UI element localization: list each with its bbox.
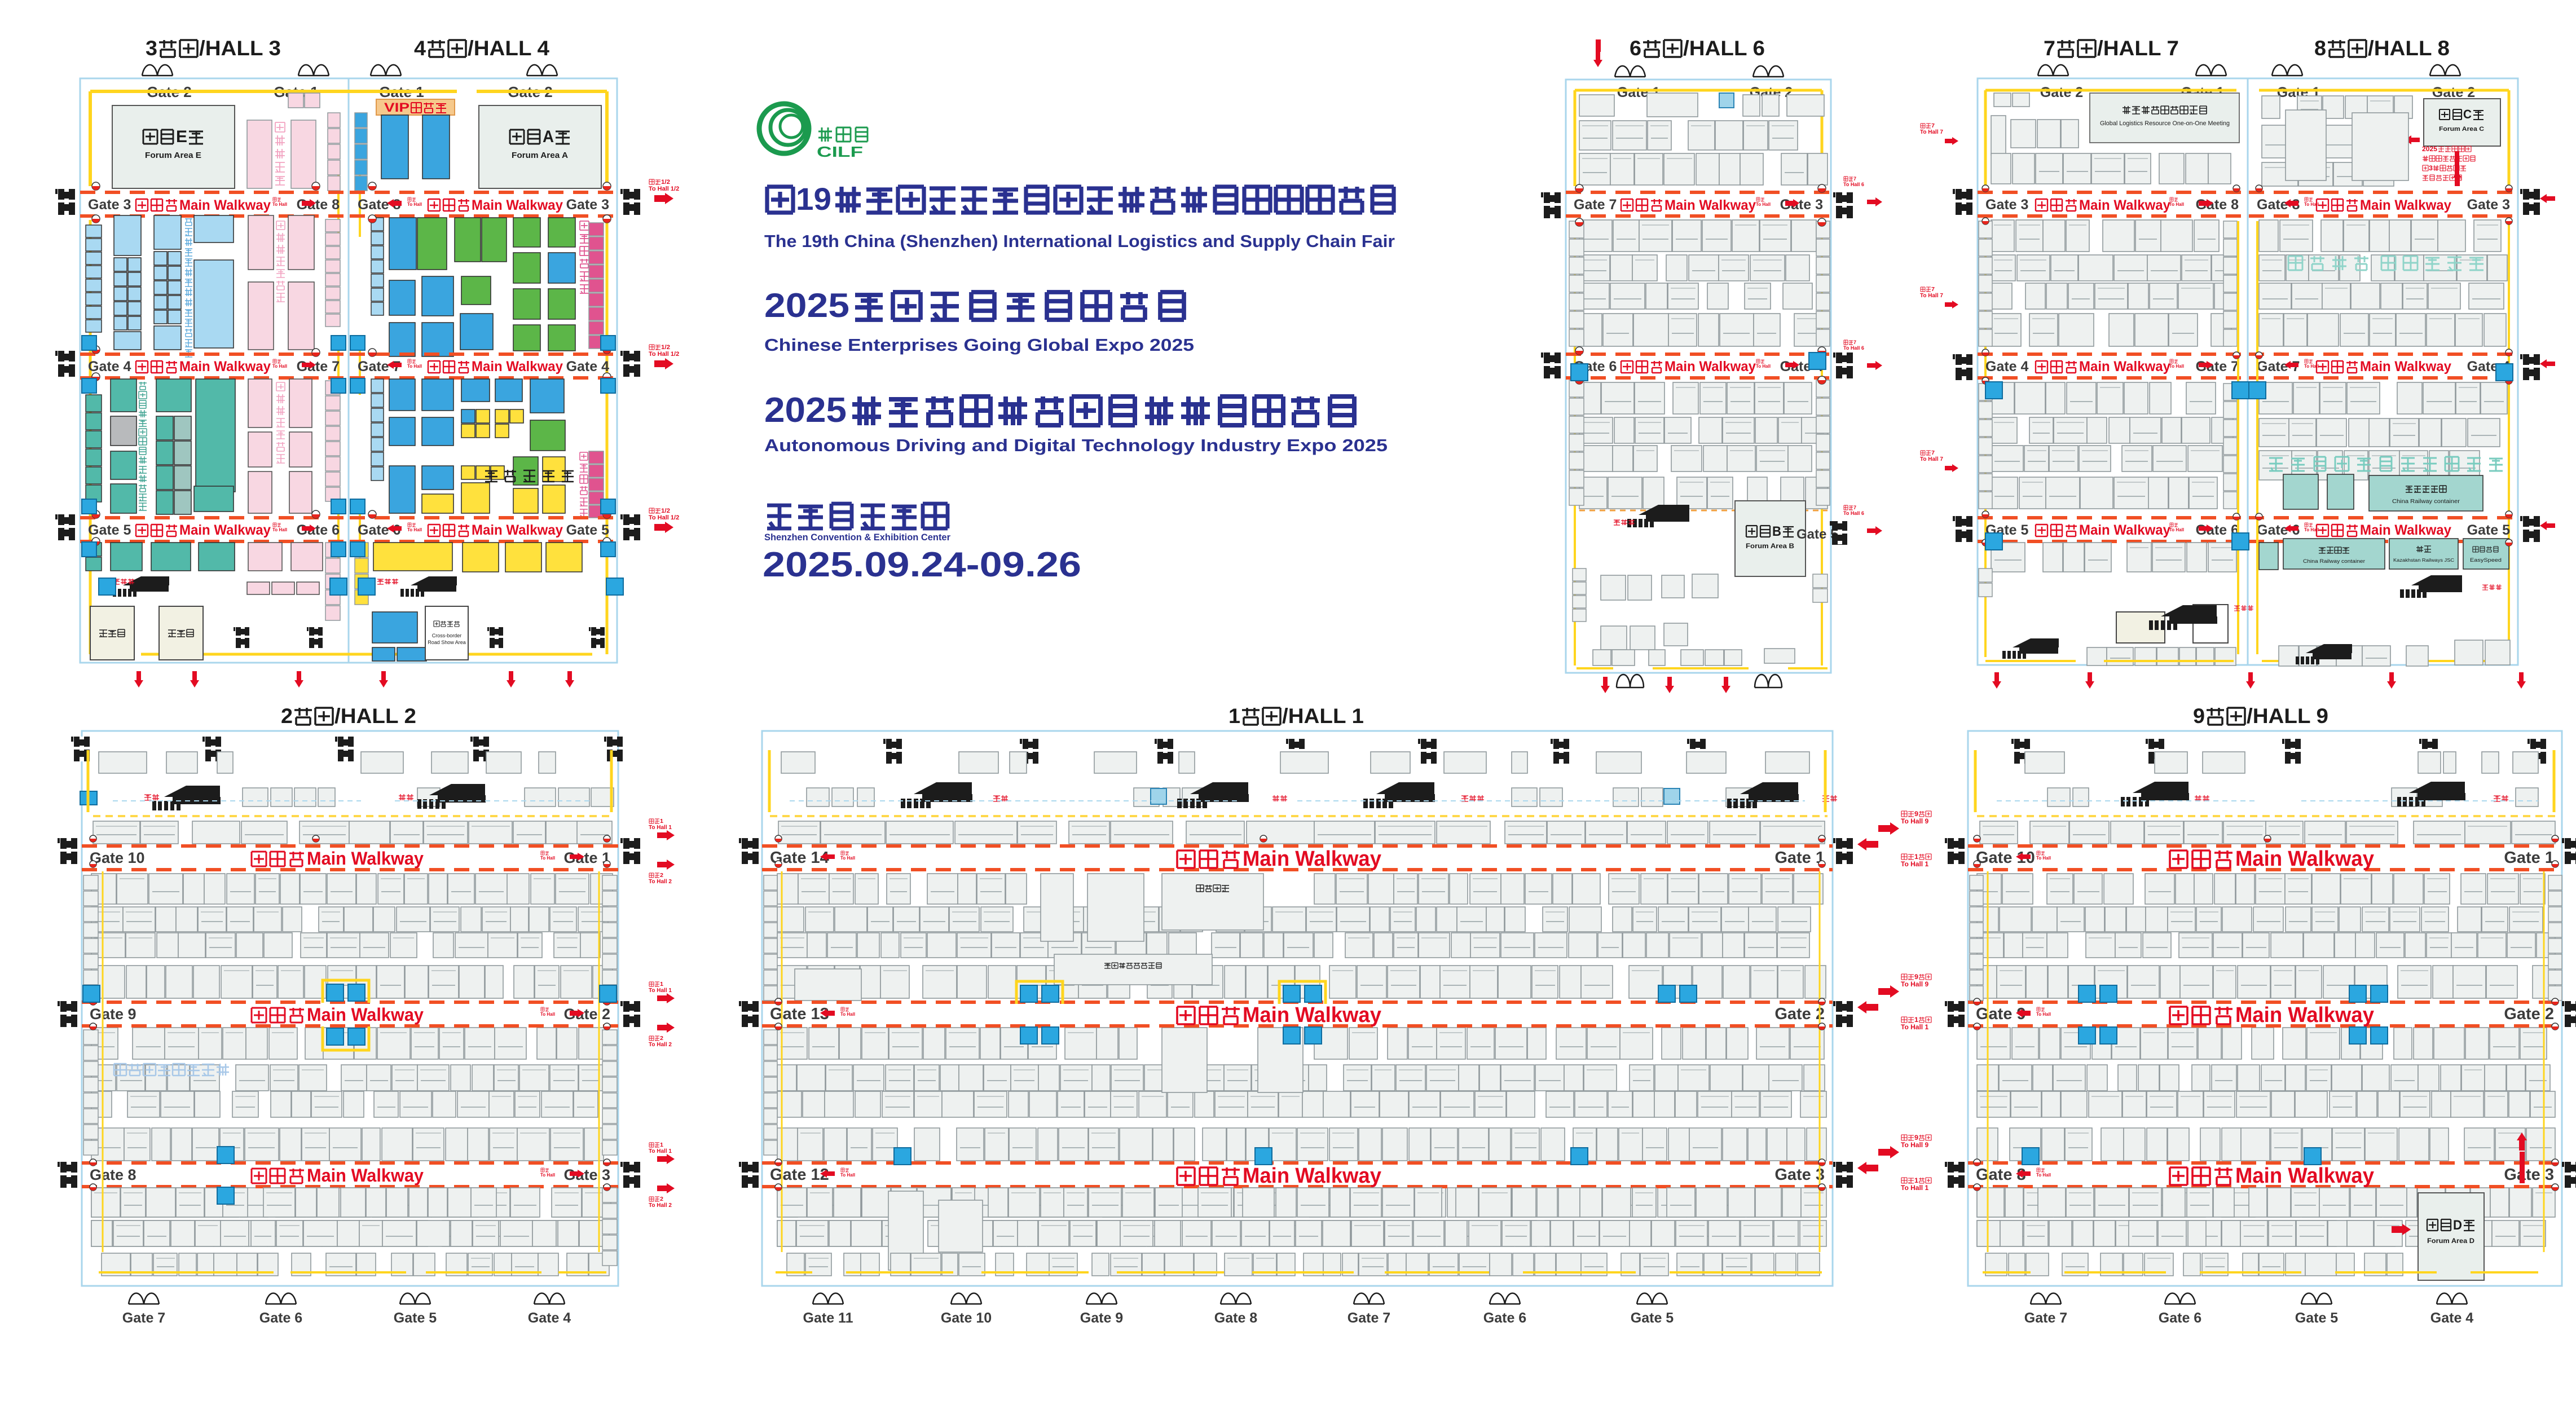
svg-text:Gate 5: Gate 5 xyxy=(1631,1310,1674,1326)
svg-text:Gate 5: Gate 5 xyxy=(394,1310,437,1326)
svg-text:To Hall 2: To Hall 2 xyxy=(649,879,672,885)
svg-text:To Hall 1: To Hall 1 xyxy=(1901,1023,1928,1031)
svg-text:Forum Area B: Forum Area B xyxy=(1746,542,1794,550)
svg-text:Forum Area A: Forum Area A xyxy=(512,151,568,160)
svg-text:Main Walkway: Main Walkway xyxy=(179,197,271,213)
svg-text:/HALL 9: /HALL 9 xyxy=(2247,704,2328,728)
svg-text:To Hall: To Hall xyxy=(2304,364,2319,369)
svg-text:Gate 6: Gate 6 xyxy=(1483,1310,1526,1326)
svg-text:To Hall: To Hall xyxy=(2036,1012,2051,1017)
svg-text:Main Walkway: Main Walkway xyxy=(472,522,563,538)
svg-text:VIP: VIP xyxy=(384,100,409,114)
svg-text:2: 2 xyxy=(660,872,663,879)
svg-text:Main Walkway: Main Walkway xyxy=(1243,847,1381,871)
svg-text:/HALL 8: /HALL 8 xyxy=(2368,37,2450,60)
svg-text:7: 7 xyxy=(2044,37,2055,60)
svg-text:To Hall: To Hall xyxy=(840,1173,855,1178)
svg-text:To Hall 7: To Hall 7 xyxy=(1920,456,1943,462)
svg-text:To Hall: To Hall xyxy=(407,364,422,369)
svg-text:Gate 3: Gate 3 xyxy=(2467,197,2510,213)
svg-text:1/2: 1/2 xyxy=(661,179,670,186)
svg-text:2: 2 xyxy=(660,1035,663,1042)
svg-text:To Hall: To Hall xyxy=(272,364,287,369)
svg-text:To Hall: To Hall xyxy=(2169,364,2184,369)
svg-text:/HALL 6: /HALL 6 xyxy=(1683,37,1765,60)
svg-text:To Hall: To Hall xyxy=(2169,202,2184,207)
svg-text:To Hall 7: To Hall 7 xyxy=(1920,129,1943,135)
svg-text:Gate 4: Gate 4 xyxy=(1985,359,2029,374)
svg-text:To Hall: To Hall xyxy=(407,202,422,207)
svg-text:19: 19 xyxy=(796,181,831,217)
svg-text:4: 4 xyxy=(414,37,426,60)
svg-text:Cross-border: Cross-border xyxy=(432,633,462,638)
svg-text:B: B xyxy=(1772,524,1781,539)
svg-text:To Hall: To Hall xyxy=(407,527,422,532)
svg-text:To Hall 1: To Hall 1 xyxy=(649,1148,672,1154)
svg-text:2025: 2025 xyxy=(764,391,847,430)
svg-text:/HALL 4: /HALL 4 xyxy=(468,37,549,60)
svg-text:Main Walkway: Main Walkway xyxy=(2235,847,2374,871)
svg-text:7: 7 xyxy=(1853,505,1856,510)
svg-text:8: 8 xyxy=(2314,37,2326,60)
svg-text:To Hall 1: To Hall 1 xyxy=(649,825,672,831)
svg-text:Main Walkway: Main Walkway xyxy=(1243,1164,1381,1188)
svg-text:To Hall 2: To Hall 2 xyxy=(649,1202,672,1209)
svg-text:To Hall: To Hall xyxy=(840,856,855,861)
svg-text:Autonomous Driving and Digital: Autonomous Driving and Digital Technolog… xyxy=(764,435,1388,455)
svg-text:Road Show Area: Road Show Area xyxy=(428,640,466,645)
svg-text:To Hall: To Hall xyxy=(540,856,555,861)
svg-text:Shenzhen Convention & Exhibiti: Shenzhen Convention & Exhibition Center xyxy=(764,532,950,543)
svg-text:C: C xyxy=(2463,107,2472,121)
svg-text:Gate 8: Gate 8 xyxy=(1214,1310,1258,1326)
svg-text:Chinese Enterprises Going Glob: Chinese Enterprises Going Global Expo 20… xyxy=(764,335,1194,355)
svg-text:To Hall 1: To Hall 1 xyxy=(1901,1184,1928,1192)
svg-text:Gate 12: Gate 12 xyxy=(770,1166,829,1184)
svg-text:2025: 2025 xyxy=(764,287,849,324)
svg-text:Gate 5: Gate 5 xyxy=(1796,527,1838,542)
svg-text:1: 1 xyxy=(660,818,663,825)
svg-text:To Hall: To Hall xyxy=(2036,856,2051,861)
svg-text:Gate 7: Gate 7 xyxy=(1574,197,1617,213)
svg-text:3: 3 xyxy=(146,37,157,60)
svg-text:1: 1 xyxy=(660,981,663,988)
svg-text:A: A xyxy=(543,127,554,146)
svg-text:The 19th China (Shenzhen) Inte: The 19th China (Shenzhen) International … xyxy=(764,231,1395,251)
svg-text:To Hall 6: To Hall 6 xyxy=(1843,510,1864,516)
svg-text:/HALL 7: /HALL 7 xyxy=(2097,37,2179,60)
svg-text:2: 2 xyxy=(660,1196,663,1202)
svg-text:To Hall: To Hall xyxy=(840,1012,855,1017)
svg-text:9: 9 xyxy=(2193,704,2205,728)
svg-text:1: 1 xyxy=(1914,1016,1918,1024)
svg-text:Forum Area E: Forum Area E xyxy=(145,151,201,160)
svg-text:1: 1 xyxy=(1914,1176,1918,1184)
svg-text:Gate 2: Gate 2 xyxy=(2504,1005,2554,1023)
svg-text:Forum Area D: Forum Area D xyxy=(2427,1237,2474,1245)
svg-text:Main Walkway: Main Walkway xyxy=(2235,1164,2374,1188)
svg-text:Main Walkway: Main Walkway xyxy=(179,522,271,538)
svg-text:Gate 4: Gate 4 xyxy=(2430,1310,2474,1326)
svg-text:Main Walkway: Main Walkway xyxy=(2235,1003,2374,1027)
svg-text:To Hall: To Hall xyxy=(2169,527,2184,532)
svg-text:D: D xyxy=(2453,1218,2462,1233)
svg-text:To Hall 6: To Hall 6 xyxy=(1843,345,1864,351)
svg-text:China Railway container: China Railway container xyxy=(2303,558,2365,564)
svg-text:Gate 6: Gate 6 xyxy=(259,1310,302,1326)
svg-text:To Hall: To Hall xyxy=(2304,527,2319,532)
svg-text:Gate 11: Gate 11 xyxy=(803,1310,853,1326)
svg-text:/HALL 2: /HALL 2 xyxy=(334,704,416,728)
svg-text:Gate 3: Gate 3 xyxy=(1774,1166,1825,1184)
svg-text:1/2: 1/2 xyxy=(661,508,670,514)
svg-text:Gate 2: Gate 2 xyxy=(2040,85,2083,100)
svg-text:Gate 7: Gate 7 xyxy=(2024,1310,2067,1326)
svg-text:6: 6 xyxy=(1630,37,1641,60)
svg-text:To Hall 1/2: To Hall 1/2 xyxy=(649,186,679,192)
svg-text:Gate 8: Gate 8 xyxy=(90,1166,136,1183)
svg-text:Main Walkway: Main Walkway xyxy=(2079,197,2170,213)
svg-text:Gate 5: Gate 5 xyxy=(88,522,131,538)
svg-text:Gate 13: Gate 13 xyxy=(770,1005,829,1023)
svg-text:Main Walkway: Main Walkway xyxy=(2360,359,2451,374)
svg-text:To Hall: To Hall xyxy=(540,1173,555,1178)
svg-text:To Hall: To Hall xyxy=(1756,202,1771,207)
svg-text:9: 9 xyxy=(1914,1134,1918,1142)
svg-text:Gate 9: Gate 9 xyxy=(1080,1310,1123,1326)
svg-text:E: E xyxy=(176,127,187,146)
svg-text:Gate 1: Gate 1 xyxy=(2504,849,2554,867)
svg-text:Gate 3: Gate 3 xyxy=(88,197,131,213)
svg-text:Kazakhstan Railways JSC: Kazakhstan Railways JSC xyxy=(2393,558,2454,563)
svg-text:7: 7 xyxy=(1931,123,1935,129)
svg-text:Main Walkway: Main Walkway xyxy=(2079,359,2170,374)
svg-text:9: 9 xyxy=(1914,810,1918,818)
svg-text:1/2: 1/2 xyxy=(661,344,670,351)
svg-text:To Hall: To Hall xyxy=(272,202,287,207)
svg-text:To Hall 9: To Hall 9 xyxy=(1901,980,1928,988)
svg-text:Gate 2: Gate 2 xyxy=(1774,1005,1825,1023)
svg-text:7: 7 xyxy=(1931,287,1935,293)
svg-text:To Hall 9: To Hall 9 xyxy=(1901,817,1928,825)
svg-text:To Hall: To Hall xyxy=(540,1012,555,1017)
svg-text:Gate 4: Gate 4 xyxy=(88,359,131,374)
svg-text:9: 9 xyxy=(1914,973,1918,981)
svg-text:To Hall 1/2: To Hall 1/2 xyxy=(649,514,679,521)
svg-text:1: 1 xyxy=(660,1142,663,1148)
svg-text:Gate 2: Gate 2 xyxy=(2432,85,2475,100)
svg-text:/HALL 3: /HALL 3 xyxy=(199,37,281,60)
svg-text:Gate 4: Gate 4 xyxy=(528,1310,571,1326)
svg-text:Global Logistics Resource One-: Global Logistics Resource One-on-One Mee… xyxy=(2100,120,2230,127)
svg-text:7: 7 xyxy=(1931,450,1935,456)
svg-text:Main Walkway: Main Walkway xyxy=(1243,1003,1381,1027)
svg-text:Gate 3: Gate 3 xyxy=(566,197,609,213)
svg-text:7: 7 xyxy=(1853,340,1856,345)
svg-text:Gate 9: Gate 9 xyxy=(90,1006,136,1023)
svg-text:Forum Area C: Forum Area C xyxy=(2439,126,2484,133)
svg-text:To Hall: To Hall xyxy=(2036,1173,2051,1178)
svg-text:1: 1 xyxy=(1228,704,1240,728)
svg-text:2025: 2025 xyxy=(2422,145,2437,153)
svg-text:Main Walkway: Main Walkway xyxy=(307,1004,424,1025)
svg-text:Main Walkway: Main Walkway xyxy=(472,197,563,213)
svg-text:Gate 5: Gate 5 xyxy=(566,522,610,538)
svg-text:Gate 3: Gate 3 xyxy=(2504,1166,2554,1184)
svg-text:Main Walkway: Main Walkway xyxy=(472,359,563,374)
svg-text:2: 2 xyxy=(281,704,293,728)
svg-text:To Hall: To Hall xyxy=(1756,364,1771,369)
svg-text:/HALL 1: /HALL 1 xyxy=(1282,704,1364,728)
svg-text:To Hall 7: To Hall 7 xyxy=(1920,293,1943,299)
svg-text:To Hall: To Hall xyxy=(2304,202,2319,207)
svg-text:Main Walkway: Main Walkway xyxy=(2360,522,2451,538)
svg-text:China Railway container: China Railway container xyxy=(2392,499,2460,505)
svg-text:Gate 1: Gate 1 xyxy=(1774,849,1825,867)
svg-text:EasySpeed: EasySpeed xyxy=(2470,557,2502,563)
svg-text:Main Walkway: Main Walkway xyxy=(179,359,271,374)
svg-text:Gate 5: Gate 5 xyxy=(2295,1310,2339,1326)
svg-text:Main Walkway: Main Walkway xyxy=(307,848,424,869)
svg-text:Gate 5: Gate 5 xyxy=(2467,522,2511,538)
svg-text:To Hall 9: To Hall 9 xyxy=(1901,1141,1928,1149)
svg-text:Gate 10: Gate 10 xyxy=(90,849,145,866)
svg-text:To Hall 1: To Hall 1 xyxy=(1901,860,1928,868)
svg-text:To Hall: To Hall xyxy=(272,527,287,532)
svg-text:Main Walkway: Main Walkway xyxy=(1665,197,1756,213)
svg-text:Gate 3: Gate 3 xyxy=(1985,197,2028,213)
svg-text:To Hall 1: To Hall 1 xyxy=(649,988,672,994)
svg-text:Gate 6: Gate 6 xyxy=(2159,1310,2201,1326)
svg-text:To Hall 2: To Hall 2 xyxy=(649,1042,672,1048)
svg-text:Gate 7: Gate 7 xyxy=(1348,1310,1390,1326)
svg-text:Main Walkway: Main Walkway xyxy=(2360,197,2451,213)
svg-text:Gate 10: Gate 10 xyxy=(941,1310,992,1326)
svg-text:Gate 4: Gate 4 xyxy=(566,359,610,374)
svg-text:Main Walkway: Main Walkway xyxy=(307,1165,424,1186)
svg-text:2025.09.24-09.26: 2025.09.24-09.26 xyxy=(763,545,1081,584)
svg-text:To Hall 6: To Hall 6 xyxy=(1843,182,1864,187)
svg-text:To Hall 1/2: To Hall 1/2 xyxy=(649,351,679,358)
svg-text:CILF: CILF xyxy=(817,143,863,160)
svg-text:Main Walkway: Main Walkway xyxy=(1665,359,1756,374)
svg-text:Main Walkway: Main Walkway xyxy=(2079,522,2170,538)
svg-text:7: 7 xyxy=(1853,176,1856,182)
svg-text:Gate 7: Gate 7 xyxy=(122,1310,165,1326)
svg-text:1: 1 xyxy=(1914,853,1918,861)
svg-text:3: 3 xyxy=(2429,164,2433,172)
